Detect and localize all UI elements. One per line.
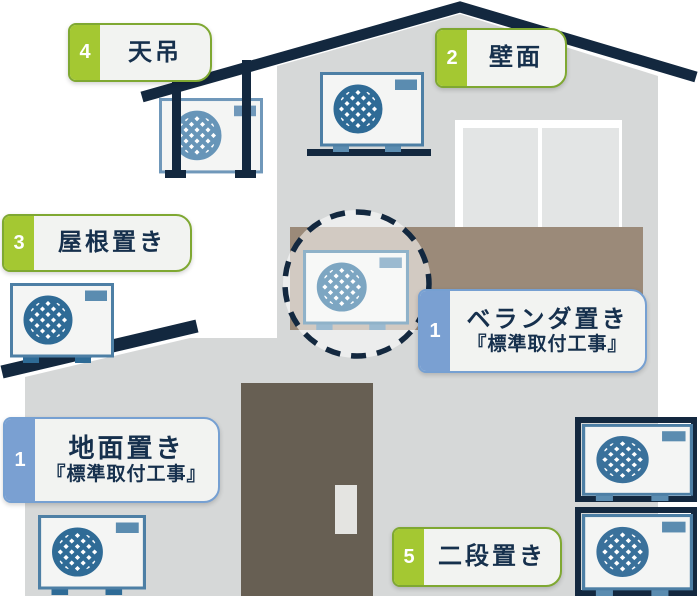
label-wall-mounted: 2 壁面 xyxy=(435,28,567,88)
label-roof-placement: 3 屋根置き xyxy=(2,214,192,272)
label-number-badge: 1 xyxy=(5,419,35,501)
door xyxy=(241,383,373,596)
label-two-tier-placement: 5 二段置き xyxy=(392,527,562,587)
ac-outdoor-unit-icon-stack-bottom xyxy=(582,514,693,596)
label-text: 地面置き xyxy=(68,434,184,464)
ac-outdoor-unit-icon-ceiling xyxy=(159,98,263,179)
label-text: 天吊 xyxy=(128,39,182,67)
ac-outdoor-unit-icon-wall xyxy=(320,72,424,152)
label-number-badge: 3 xyxy=(4,216,34,270)
door-handle xyxy=(335,485,357,534)
label-ground-placement: 1 地面置き 『標準取付工事』 xyxy=(3,417,220,503)
ac-outdoor-unit-icon-roof xyxy=(10,283,114,363)
label-subtext: 『標準取付工事』 xyxy=(467,334,627,356)
label-subtext: 『標準取付工事』 xyxy=(46,464,206,486)
label-text: ベランダ置き xyxy=(467,306,629,334)
label-ceiling-hung: 4 天吊 xyxy=(68,23,212,82)
window xyxy=(455,120,622,227)
label-text: 壁面 xyxy=(489,44,543,72)
label-number-badge: 1 xyxy=(420,291,450,371)
installation-diagram: 4 天吊 2 壁面 3 屋根置き 1 ベランダ置き 『標準取付工事』 1 地面置… xyxy=(0,0,700,596)
ac-outdoor-unit-icon-stack-top xyxy=(582,424,693,501)
label-text: 屋根置き xyxy=(58,229,166,257)
ac-outdoor-unit-icon-veranda xyxy=(303,250,409,330)
ac-outdoor-unit-icon-ground xyxy=(38,515,146,595)
label-number-badge: 4 xyxy=(70,25,100,80)
label-text: 二段置き xyxy=(438,543,546,571)
label-number-badge: 5 xyxy=(394,529,424,585)
label-veranda-placement: 1 ベランダ置き 『標準取付工事』 xyxy=(418,289,647,373)
label-number-badge: 2 xyxy=(437,30,467,86)
